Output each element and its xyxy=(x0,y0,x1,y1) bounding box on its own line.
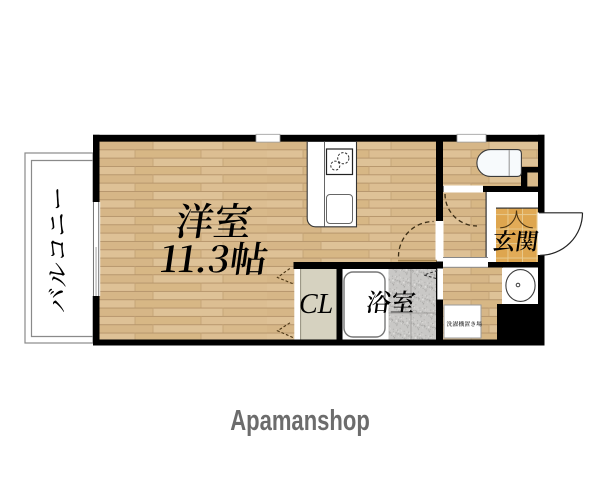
svg-text:CL: CL xyxy=(299,289,333,320)
